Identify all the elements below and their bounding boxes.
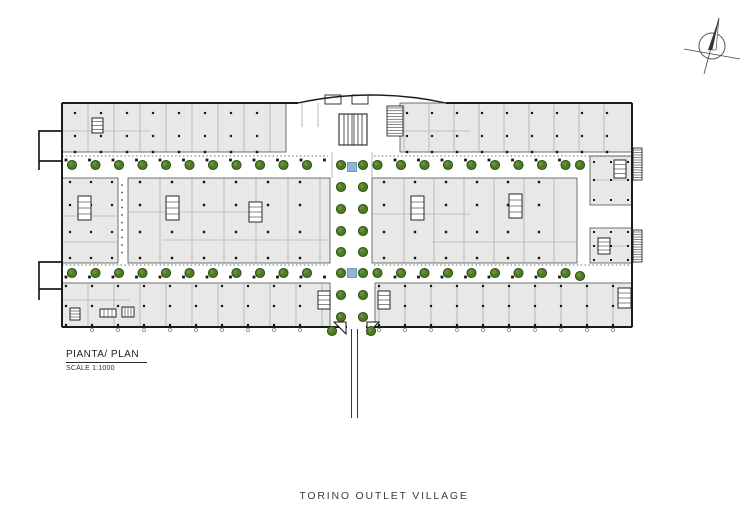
tree-marker bbox=[138, 268, 147, 277]
tree-marker bbox=[490, 160, 499, 169]
tree-marker bbox=[67, 160, 76, 169]
tree-marker bbox=[443, 268, 452, 277]
compass-north-icon bbox=[684, 18, 740, 74]
tree-marker bbox=[396, 160, 405, 169]
tree-marker bbox=[358, 182, 367, 191]
tree-marker bbox=[373, 160, 382, 169]
tree-marker bbox=[358, 268, 367, 277]
tree-marker bbox=[537, 268, 546, 277]
water-feature bbox=[348, 163, 357, 172]
tree-marker bbox=[561, 160, 570, 169]
tree-marker bbox=[336, 312, 345, 321]
tree-marker bbox=[185, 268, 194, 277]
tree-marker bbox=[537, 160, 546, 169]
tree-marker bbox=[138, 160, 147, 169]
tree-marker bbox=[279, 268, 288, 277]
tree-marker bbox=[232, 268, 241, 277]
tree-marker bbox=[467, 268, 476, 277]
tree-marker bbox=[514, 268, 523, 277]
floor-plan-drawing bbox=[0, 0, 750, 526]
tree-marker bbox=[91, 268, 100, 277]
tree-marker bbox=[327, 326, 336, 335]
tree-marker bbox=[114, 160, 123, 169]
tree-marker bbox=[358, 160, 367, 169]
tree-marker bbox=[336, 268, 345, 277]
entrance-path bbox=[334, 322, 379, 418]
tree-marker bbox=[336, 290, 345, 299]
tree-marker bbox=[67, 268, 76, 277]
tree-marker bbox=[373, 268, 382, 277]
plan-label-title: PIANTA/ PLAN bbox=[66, 349, 147, 363]
plan-label: PIANTA/ PLAN SCALE 1:1000 bbox=[66, 344, 147, 372]
tree-marker bbox=[208, 160, 217, 169]
tree-marker bbox=[358, 204, 367, 213]
tree-marker bbox=[514, 160, 523, 169]
tree-marker bbox=[279, 160, 288, 169]
tree-marker bbox=[396, 268, 405, 277]
tree-marker bbox=[490, 268, 499, 277]
tree-marker bbox=[302, 268, 311, 277]
sheet-title: TORINO OUTLET VILLAGE bbox=[0, 490, 750, 502]
tree-marker bbox=[302, 160, 311, 169]
tree-marker bbox=[161, 268, 170, 277]
tree-marker bbox=[161, 160, 170, 169]
tree-marker bbox=[443, 160, 452, 169]
tree-marker bbox=[575, 160, 584, 169]
tree-marker bbox=[420, 160, 429, 169]
tree-marker bbox=[336, 182, 345, 191]
tree-marker bbox=[255, 268, 264, 277]
drawing-sheet: PIANTA/ PLAN SCALE 1:1000 TORINO OUTLET … bbox=[0, 0, 750, 526]
tree-marker bbox=[366, 326, 375, 335]
tree-marker bbox=[336, 226, 345, 235]
tree-marker bbox=[575, 271, 584, 280]
tree-marker bbox=[185, 160, 194, 169]
plan-label-scale: SCALE 1:1000 bbox=[66, 365, 147, 372]
tree-marker bbox=[358, 226, 367, 235]
tree-marker bbox=[336, 204, 345, 213]
tree-marker bbox=[336, 247, 345, 256]
tree-marker bbox=[114, 268, 123, 277]
tree-marker bbox=[208, 268, 217, 277]
tree-marker bbox=[358, 290, 367, 299]
tree-marker bbox=[358, 247, 367, 256]
tree-marker bbox=[336, 160, 345, 169]
tree-marker bbox=[467, 160, 476, 169]
tree-marker bbox=[232, 160, 241, 169]
tree-marker bbox=[420, 268, 429, 277]
tree-marker bbox=[358, 312, 367, 321]
tree-marker bbox=[561, 268, 570, 277]
tree-marker bbox=[255, 160, 264, 169]
water-features-layer bbox=[348, 163, 357, 278]
tree-marker bbox=[91, 160, 100, 169]
water-feature bbox=[348, 269, 357, 278]
